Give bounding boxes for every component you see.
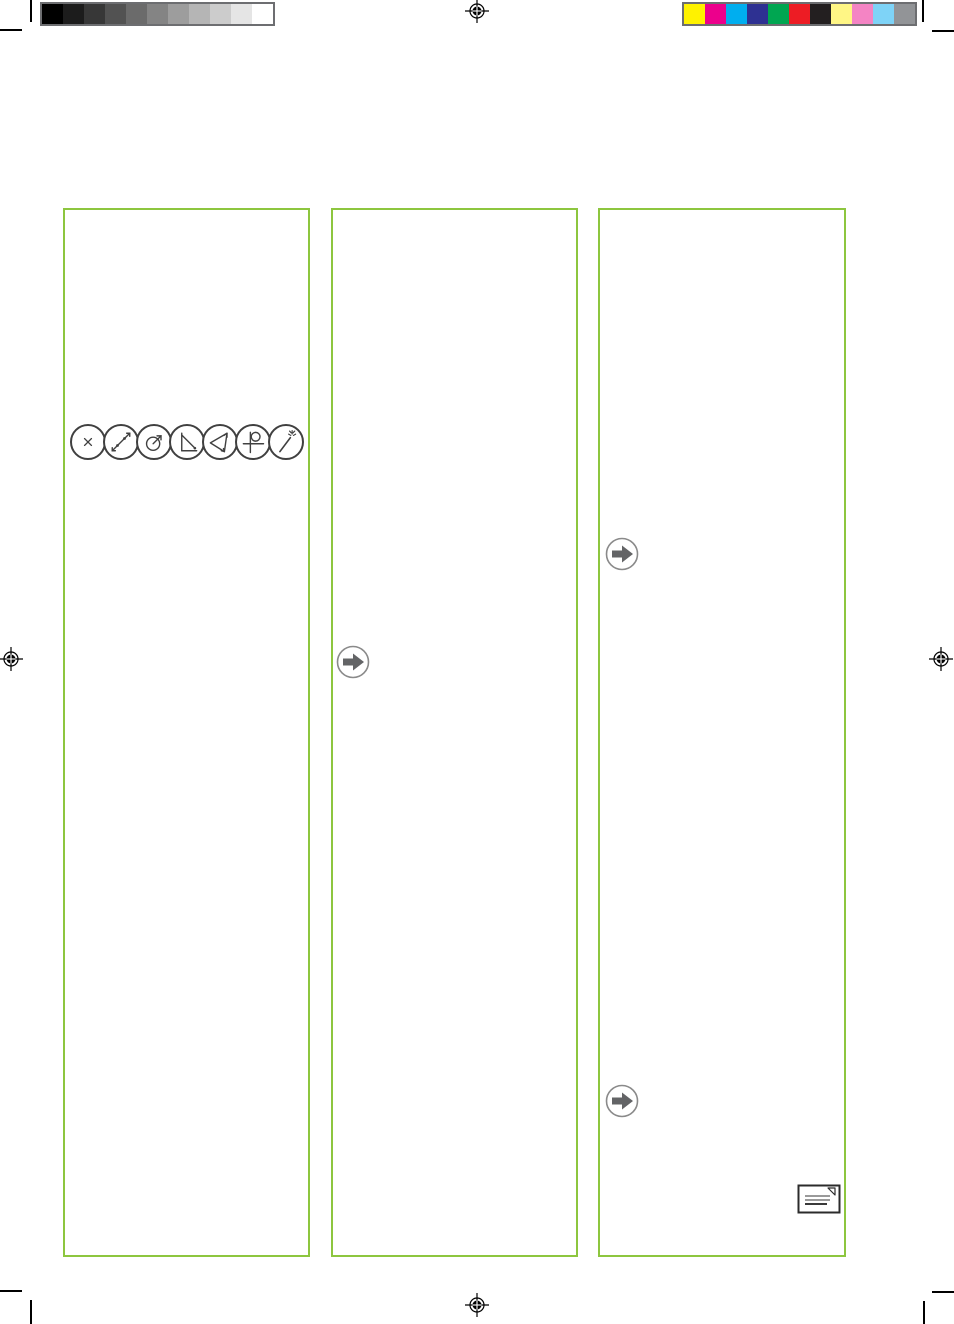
registration-mark-right-middle <box>929 647 953 671</box>
color-swatch <box>831 4 852 24</box>
color-swatch <box>873 4 894 24</box>
color-swatch <box>747 4 768 24</box>
arrow-right-icon <box>336 645 370 679</box>
line-through-points-icon <box>103 424 139 460</box>
note-icon <box>797 1184 841 1214</box>
crop-mark-top-left-horizontal <box>0 29 22 31</box>
color-swatch <box>789 4 810 24</box>
color-swatch <box>810 4 831 24</box>
geometry-tools-row <box>70 424 301 460</box>
color-swatch <box>852 4 873 24</box>
color-swatch <box>705 4 726 24</box>
right-angle-icon <box>169 424 205 460</box>
grayscale-swatch <box>252 4 273 24</box>
grayscale-swatch <box>126 4 147 24</box>
magic-wand-icon <box>268 424 304 460</box>
color-swatch <box>684 4 705 24</box>
registration-mark-bottom-center <box>465 1293 489 1317</box>
arrow-right-icon <box>605 537 639 571</box>
circle-arrow-icon <box>136 424 172 460</box>
crop-mark-bottom-right-vertical <box>923 1301 925 1324</box>
crop-mark-bottom-right-horizontal <box>932 1291 954 1293</box>
point-cross-icon <box>70 424 106 460</box>
grayscale-swatch <box>147 4 168 24</box>
grayscale-calibration-bar <box>40 2 275 26</box>
perpendicular-loop-icon <box>235 424 271 460</box>
grayscale-swatch <box>168 4 189 24</box>
color-swatch <box>726 4 747 24</box>
layout-column-2 <box>331 208 578 1257</box>
arrow-right-icon <box>605 1084 639 1118</box>
grayscale-swatch <box>210 4 231 24</box>
color-swatch <box>894 4 915 24</box>
crop-mark-bottom-left-vertical <box>30 1300 32 1324</box>
grayscale-swatch <box>63 4 84 24</box>
angle-triangle-icon <box>202 424 238 460</box>
crop-mark-top-right-horizontal <box>932 30 954 32</box>
registration-mark-left-middle <box>0 647 23 671</box>
grayscale-swatch <box>84 4 105 24</box>
crop-mark-top-left-vertical <box>30 0 32 22</box>
cmyk-color-calibration-bar <box>682 2 917 26</box>
grayscale-swatch <box>231 4 252 24</box>
crop-mark-bottom-left-horizontal <box>0 1290 22 1292</box>
color-swatch <box>768 4 789 24</box>
grayscale-swatch <box>189 4 210 24</box>
layout-column-1 <box>63 208 310 1257</box>
registration-mark-top-center <box>465 0 489 23</box>
grayscale-swatch <box>42 4 63 24</box>
grayscale-swatch <box>105 4 126 24</box>
crop-mark-top-right-vertical <box>922 0 924 22</box>
